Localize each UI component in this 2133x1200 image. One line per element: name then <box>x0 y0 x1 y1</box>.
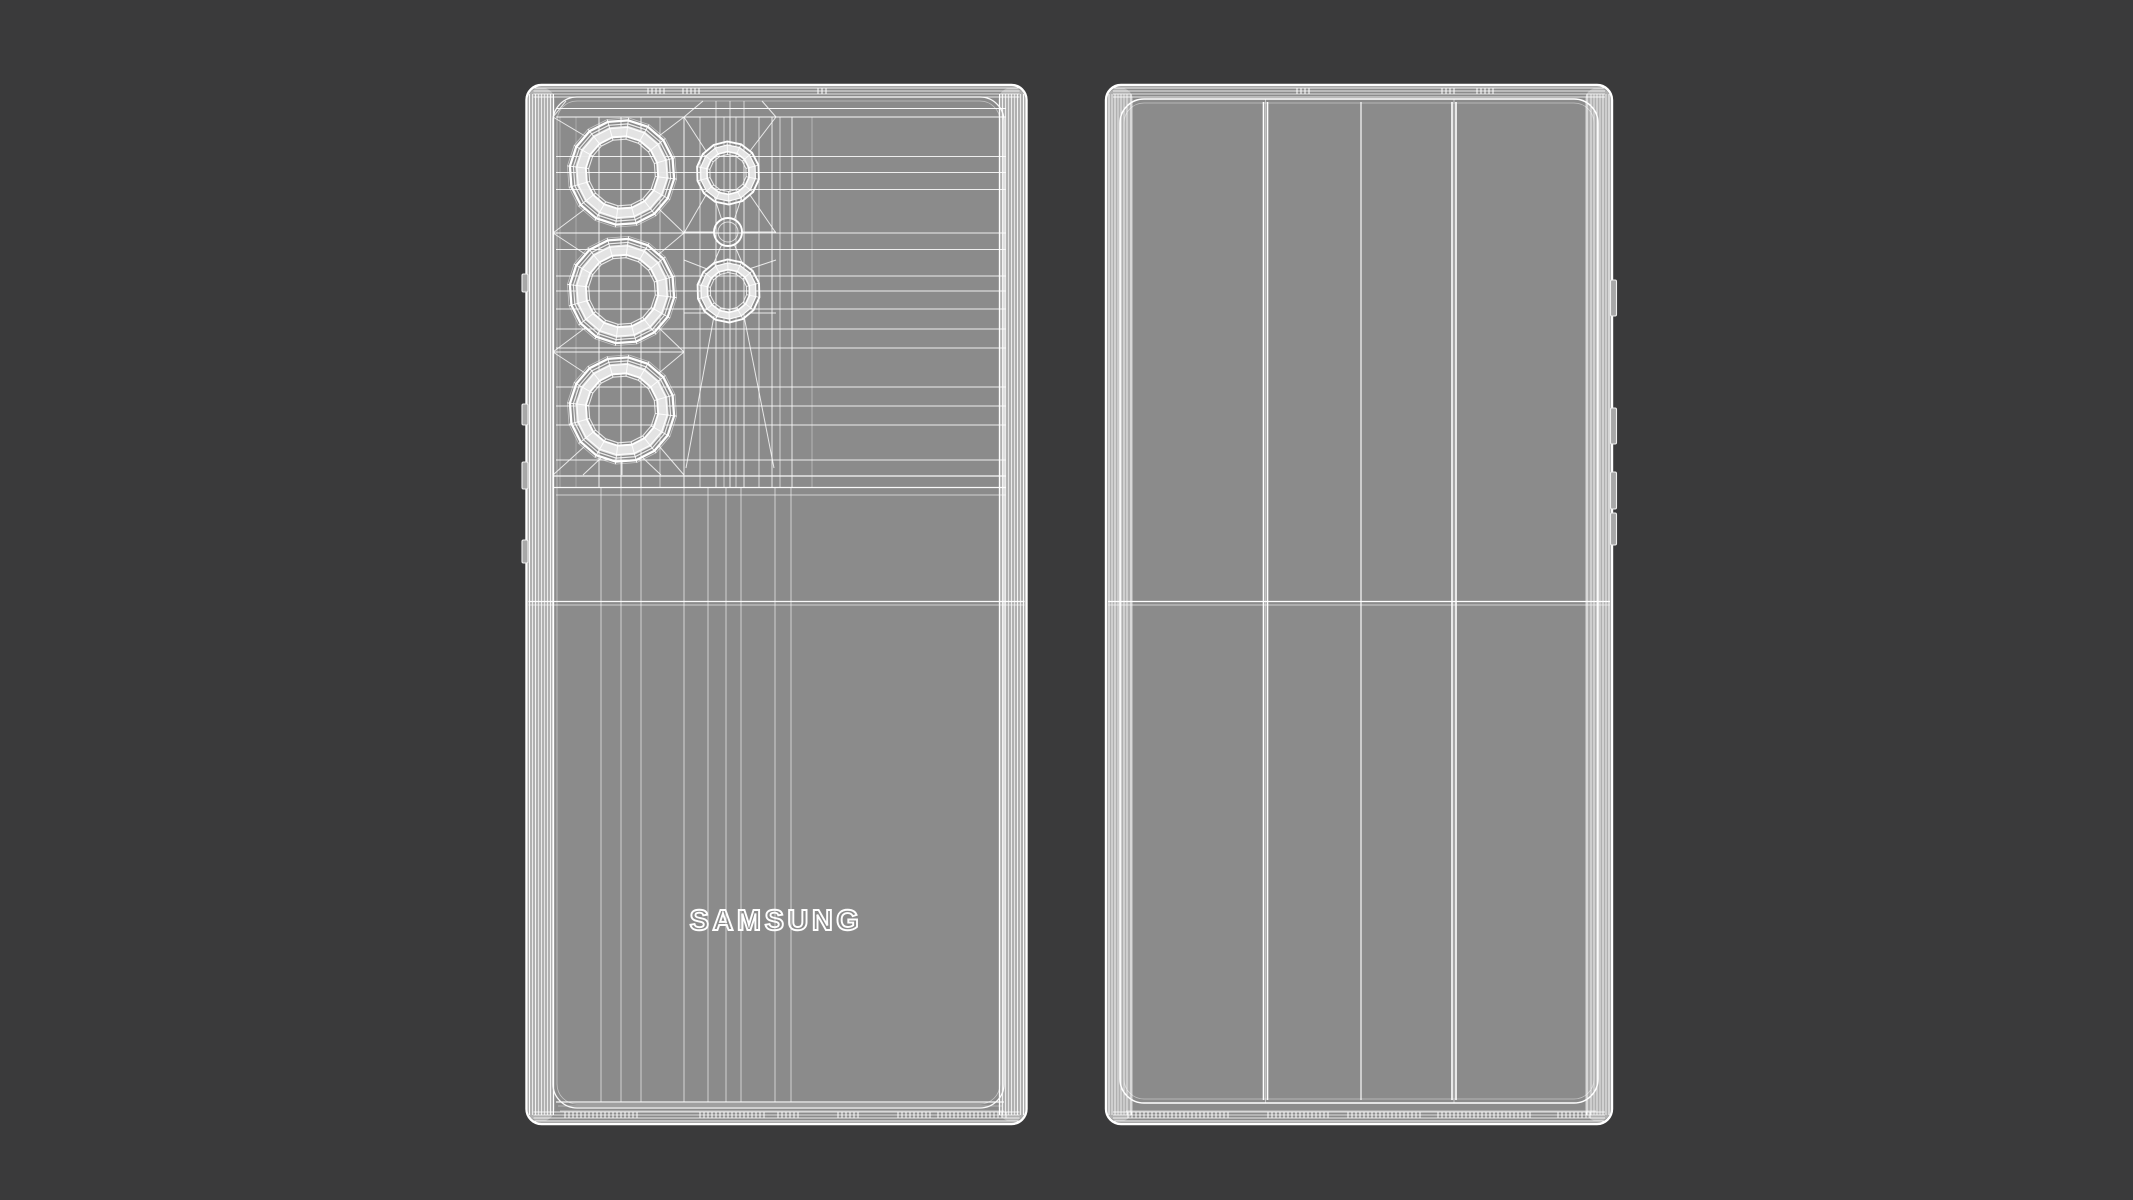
svg-text:SAMSUNG: SAMSUNG <box>690 905 863 937</box>
